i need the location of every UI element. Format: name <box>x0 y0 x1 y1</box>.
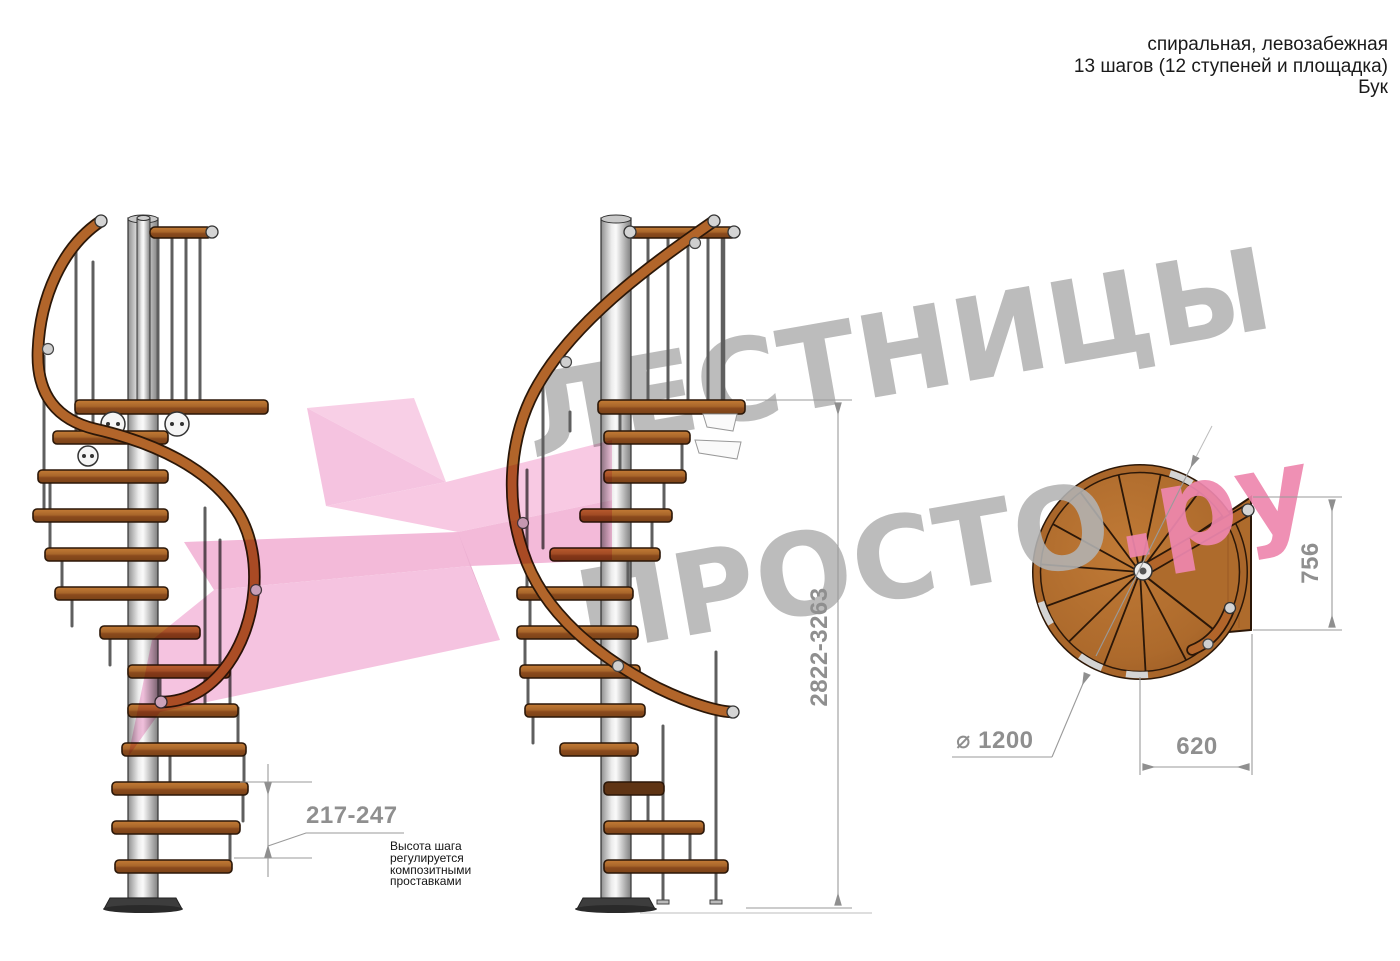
dimension-diameter: ⌀ 1200 <box>956 726 1034 755</box>
landing-handrail <box>150 227 212 238</box>
step <box>112 821 240 834</box>
step <box>122 743 246 756</box>
dimension-total-height: 2822-3263 <box>806 587 834 707</box>
step-height-note: Высота шага регулируется композитными пр… <box>390 841 510 888</box>
dimension-landing-width: 620 <box>1151 733 1243 761</box>
landing-platform <box>598 400 745 414</box>
step <box>112 782 248 795</box>
step <box>45 548 168 561</box>
technical-drawing: ЛЕСТНИЦЫ ПРОСТО .ру <box>0 0 1400 961</box>
dimension-step-height: 217-247 <box>306 802 398 830</box>
step <box>604 431 690 444</box>
landing-railing-balusters <box>158 238 200 400</box>
title-steps: 13 шагов (12 ступеней и площадка) <box>1074 56 1388 78</box>
handrail-end-cap <box>95 215 107 227</box>
step <box>604 782 664 795</box>
step <box>38 470 168 483</box>
step <box>560 743 638 756</box>
watermark-line2-pink: .ру <box>1100 420 1322 586</box>
watermark-line2-gray: ПРОСТО <box>566 456 1121 681</box>
step <box>604 470 686 483</box>
landing-platform <box>75 400 268 414</box>
dimension-landing-depth: 756 <box>1297 515 1325 611</box>
drawing-canvas: ЛЕСТНИЦЫ ПРОСТО .ру <box>0 0 1400 961</box>
title-type: спиральная, левозабежная <box>1074 34 1388 56</box>
drawing-title: спиральная, левозабежная 13 шагов (12 ст… <box>1074 34 1388 99</box>
handrail-end-cap <box>708 215 720 227</box>
step <box>33 509 168 522</box>
title-material: Бук <box>1074 77 1388 99</box>
handrail-end-cap <box>727 706 739 718</box>
railing-post <box>137 218 150 400</box>
step <box>604 821 704 834</box>
step <box>525 704 645 717</box>
step <box>604 860 728 873</box>
step <box>55 587 168 600</box>
step <box>115 860 232 873</box>
